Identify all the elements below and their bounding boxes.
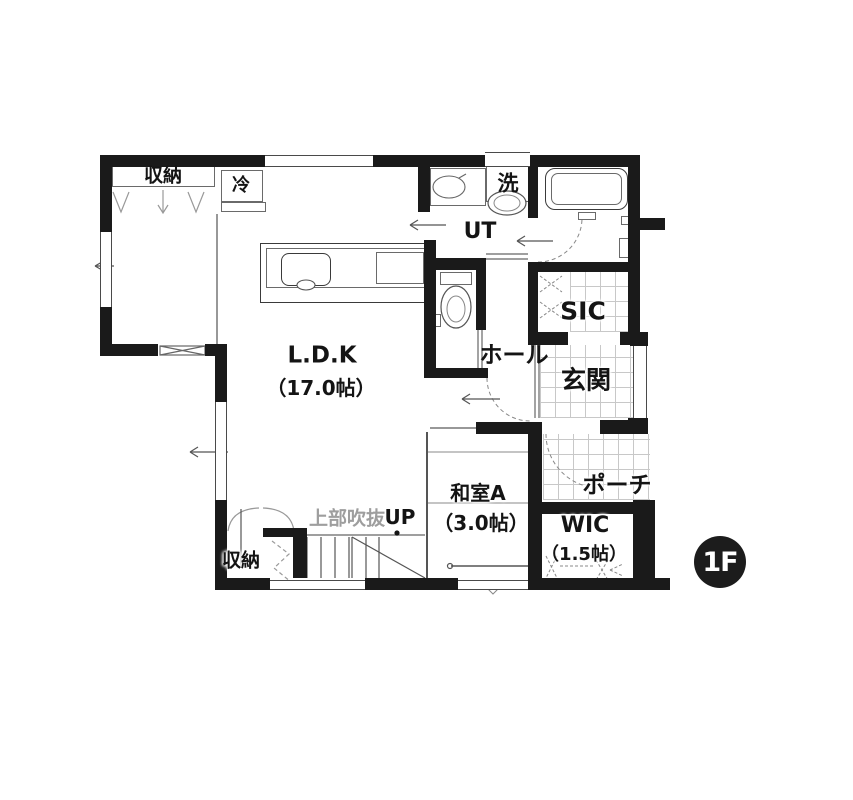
room-label-hall: ホール: [480, 345, 549, 368]
wall-segment: [476, 258, 486, 330]
room-label-storage-lower: 収納: [222, 552, 260, 571]
refrigerator-shelf: [221, 202, 266, 212]
vanity-counter: [430, 168, 486, 206]
wall-segment: [100, 155, 112, 232]
toilet-bowl-inner: [447, 296, 465, 322]
bathtub-inner: [551, 173, 622, 205]
kitchen-sink: [281, 253, 331, 286]
kitchen-stove: [376, 252, 424, 284]
toilet-bowl: [441, 286, 471, 328]
entrance-side-window: [633, 346, 647, 418]
wall-segment: [620, 332, 632, 345]
toilet-tank: [440, 272, 472, 285]
window: [100, 232, 112, 307]
room-label-ut: UT: [464, 221, 497, 243]
floor-plan: 収納 冷 洗 UT SIC ホール 玄関 L.D.K （17.0帖） 和室A （…: [0, 0, 853, 800]
wall-segment: [628, 155, 640, 272]
wall-segment: [365, 578, 458, 590]
floor-badge: 1F: [694, 536, 746, 588]
window: [215, 402, 227, 500]
wall-segment: [528, 262, 538, 332]
wall-segment: [528, 422, 542, 578]
wall-segment: [630, 332, 648, 346]
bathroom-door-arc: [538, 218, 582, 262]
stairs-treads: [307, 537, 379, 578]
room-label-entrance: 玄関: [561, 368, 611, 393]
up-start-dot: [394, 530, 399, 535]
room-label-storage-upper: 収納: [144, 167, 182, 186]
stairs-diagonal: [352, 537, 425, 578]
void-above-label: 上部吹抜: [309, 510, 385, 529]
fixture-label-washer: 洗: [498, 174, 519, 195]
bath-shelf: [578, 212, 596, 220]
wall-segment: [530, 155, 640, 167]
window: [458, 580, 528, 590]
ut-hall-slider-line: [486, 254, 528, 259]
side-door-symbol: [160, 346, 205, 355]
window: [265, 155, 373, 167]
room-label-washitsu: 和室A: [450, 483, 505, 503]
wall-segment: [293, 530, 307, 578]
wall-segment: [640, 218, 665, 230]
wall-segment: [633, 500, 655, 590]
wall-segment: [100, 155, 265, 167]
sic-shelf-hatches: [540, 276, 562, 318]
wall-segment: [538, 262, 628, 272]
room-label-porch: ポーチ: [583, 475, 652, 498]
wall-segment: [424, 368, 488, 378]
room-label-ldk: L.D.K: [287, 345, 356, 368]
wall-segment: [215, 500, 227, 590]
stairs-up-label: UP: [385, 507, 416, 527]
fixture-label-refrigerator: 冷: [232, 177, 250, 195]
stairs-break-line: [272, 541, 291, 582]
wall-segment: [628, 272, 640, 332]
room-size-wic: （1.5帖）: [541, 546, 627, 564]
washer-niche-window: [485, 152, 530, 167]
wall-segment: [100, 344, 158, 356]
wall-segment: [418, 166, 430, 212]
wall-segment: [215, 578, 270, 590]
shoji-track-knob: [448, 564, 453, 569]
hall-door-arc: [487, 378, 530, 421]
wall-segment: [600, 420, 630, 434]
room-size-ldk: （17.0帖）: [266, 378, 375, 398]
wall-segment: [215, 344, 227, 402]
wall-segment: [628, 418, 648, 434]
floor-badge-text: 1F: [702, 547, 737, 578]
room-label-sic: SIC: [560, 299, 606, 324]
closet-fold-arrows: [113, 190, 204, 213]
room-label-wic: WIC: [561, 515, 610, 537]
window: [270, 580, 365, 590]
wall-segment: [424, 258, 482, 270]
room-size-washitsu: （3.0帖）: [433, 513, 528, 533]
wall-segment: [476, 422, 536, 434]
wall-segment: [528, 158, 538, 218]
